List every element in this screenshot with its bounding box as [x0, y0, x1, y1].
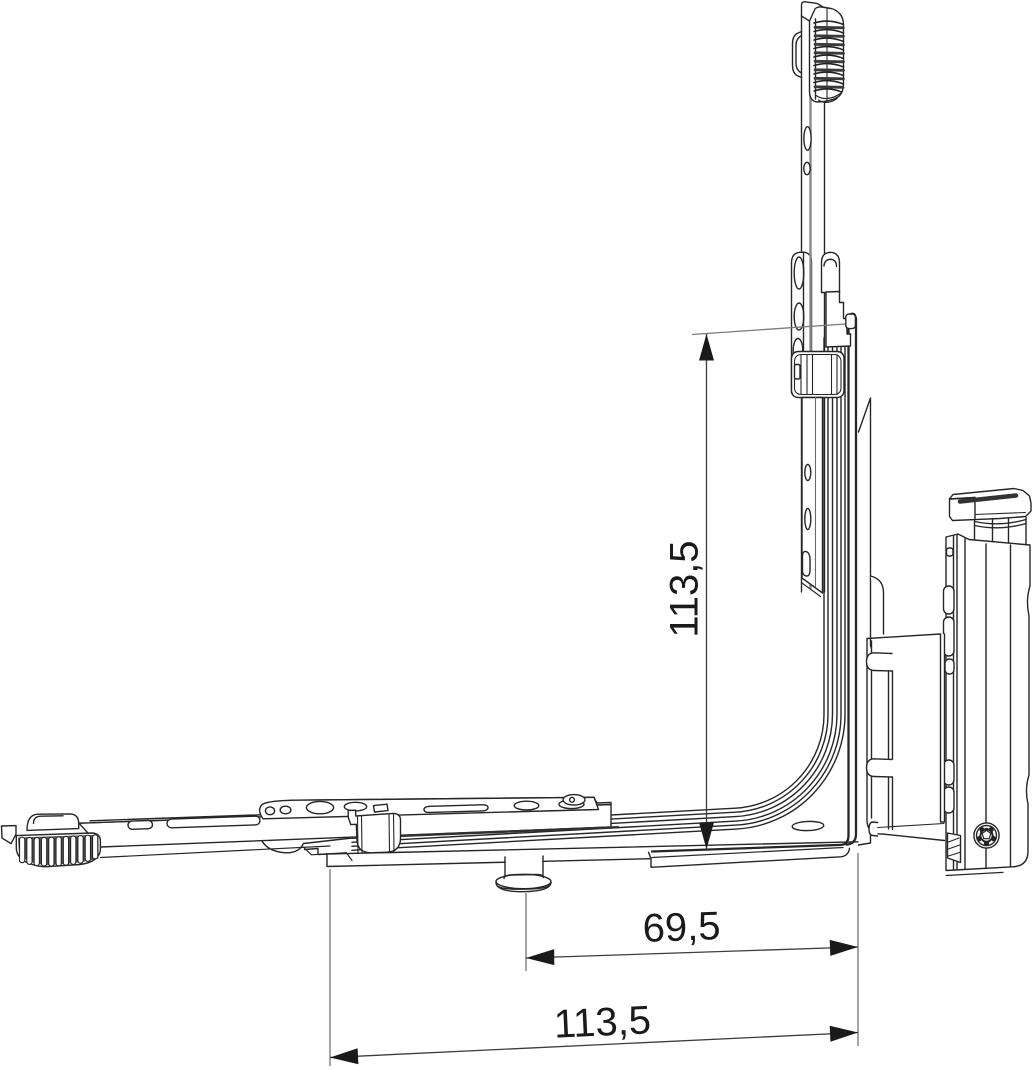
svg-text:113,5: 113,5 — [553, 998, 652, 1047]
svg-text:69,5: 69,5 — [642, 904, 721, 951]
svg-text:113,5: 113,5 — [663, 540, 707, 637]
